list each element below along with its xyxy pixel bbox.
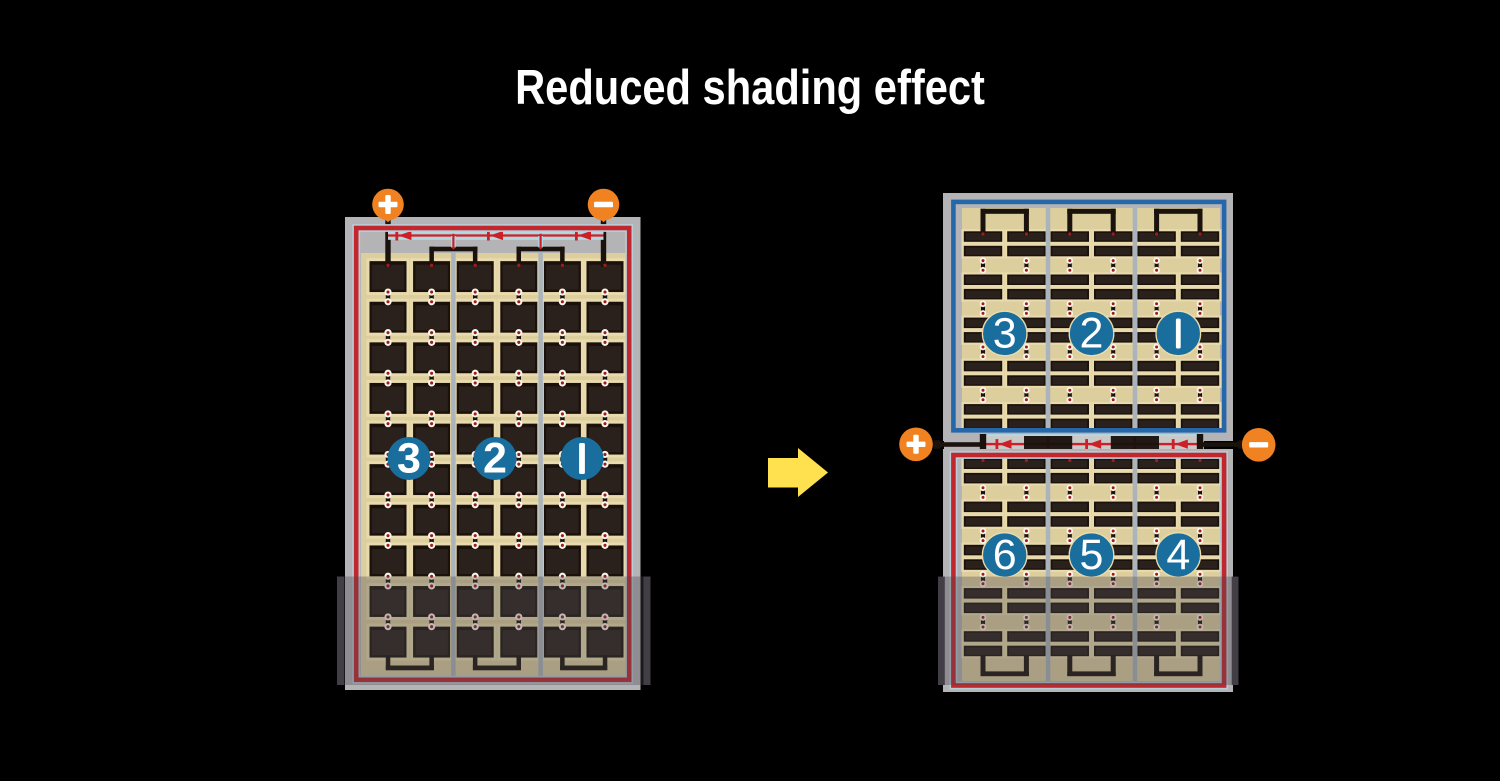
svg-text:5: 5 [1080,531,1104,579]
svg-text:2: 2 [483,435,507,483]
svg-text:4: 4 [1166,531,1190,579]
svg-text:3: 3 [993,310,1017,358]
svg-text:6: 6 [993,531,1017,579]
svg-text:3: 3 [397,435,421,483]
svg-text:2: 2 [1080,310,1104,358]
